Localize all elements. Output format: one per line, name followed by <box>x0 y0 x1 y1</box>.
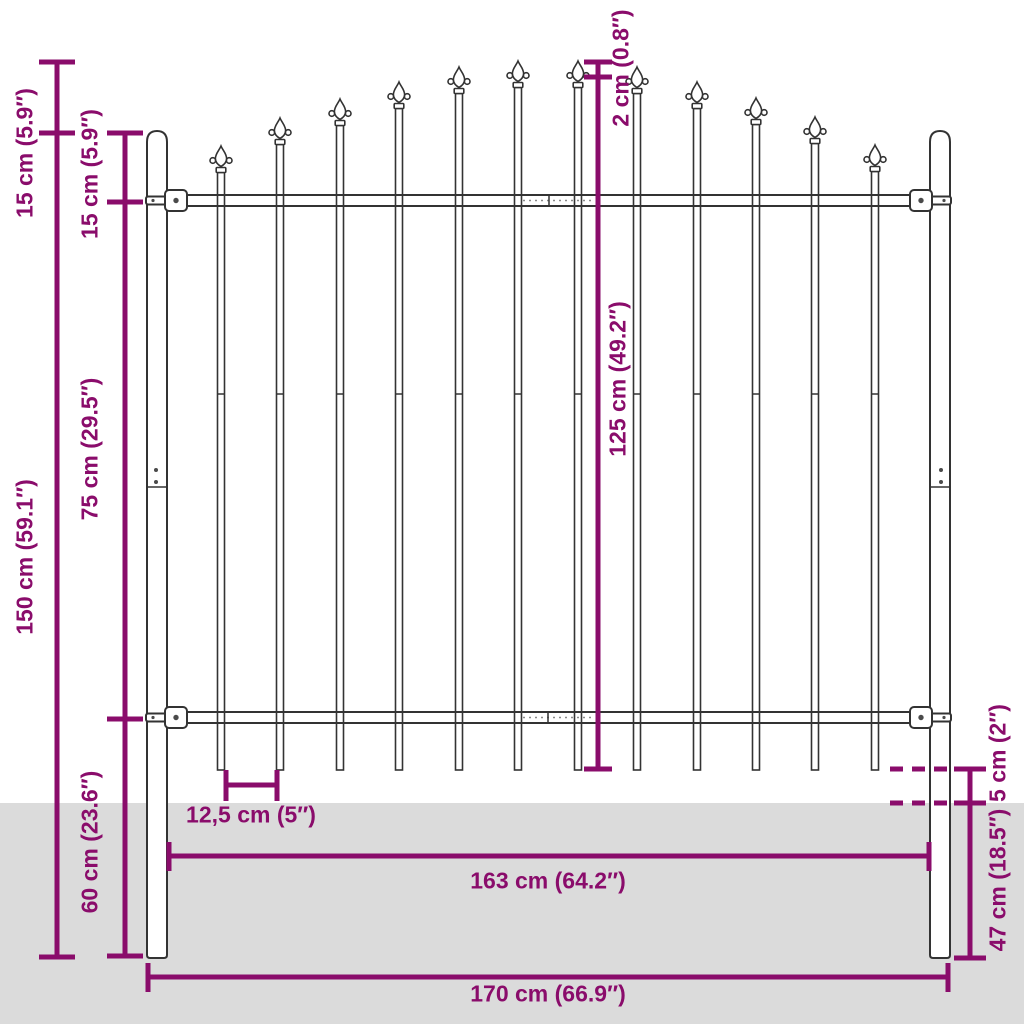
dim-line-total-height <box>39 62 75 957</box>
dim-label-post-above-rail: 15 cm (5.9″) <box>79 109 102 239</box>
dim-label-spear-above-post: 15 cm (5.9″) <box>14 88 37 218</box>
dim-line-bar-spacing <box>226 770 277 801</box>
dim-label-total-width: 170 cm (66.9″) <box>470 983 626 1006</box>
dim-label-bar-length: 125 cm (49.2″) <box>607 301 630 457</box>
dim-label-total-height: 150 cm (59.1″) <box>14 479 37 635</box>
dim-label-below-ground: 47 cm (18.5″) <box>987 809 1010 952</box>
dim-label-above-ground: 5 cm (2″) <box>987 704 1010 802</box>
dim-line-ground-depth <box>890 769 986 958</box>
dim-line-sections <box>107 133 143 956</box>
fence-dimension-diagram: 15 cm (5.9″) 150 cm (59.1″) 15 cm (5.9″)… <box>0 0 1024 1024</box>
dim-label-lower-section: 60 cm (23.6″) <box>79 771 102 914</box>
dim-label-bar-spacing: 12,5 cm (5″) <box>186 804 316 827</box>
dim-label-panel-width: 163 cm (64.2″) <box>470 870 626 893</box>
dim-label-spear-tip: 2 cm (0.8″) <box>610 9 633 126</box>
dim-label-rail-spacing: 75 cm (29.5″) <box>79 378 102 521</box>
